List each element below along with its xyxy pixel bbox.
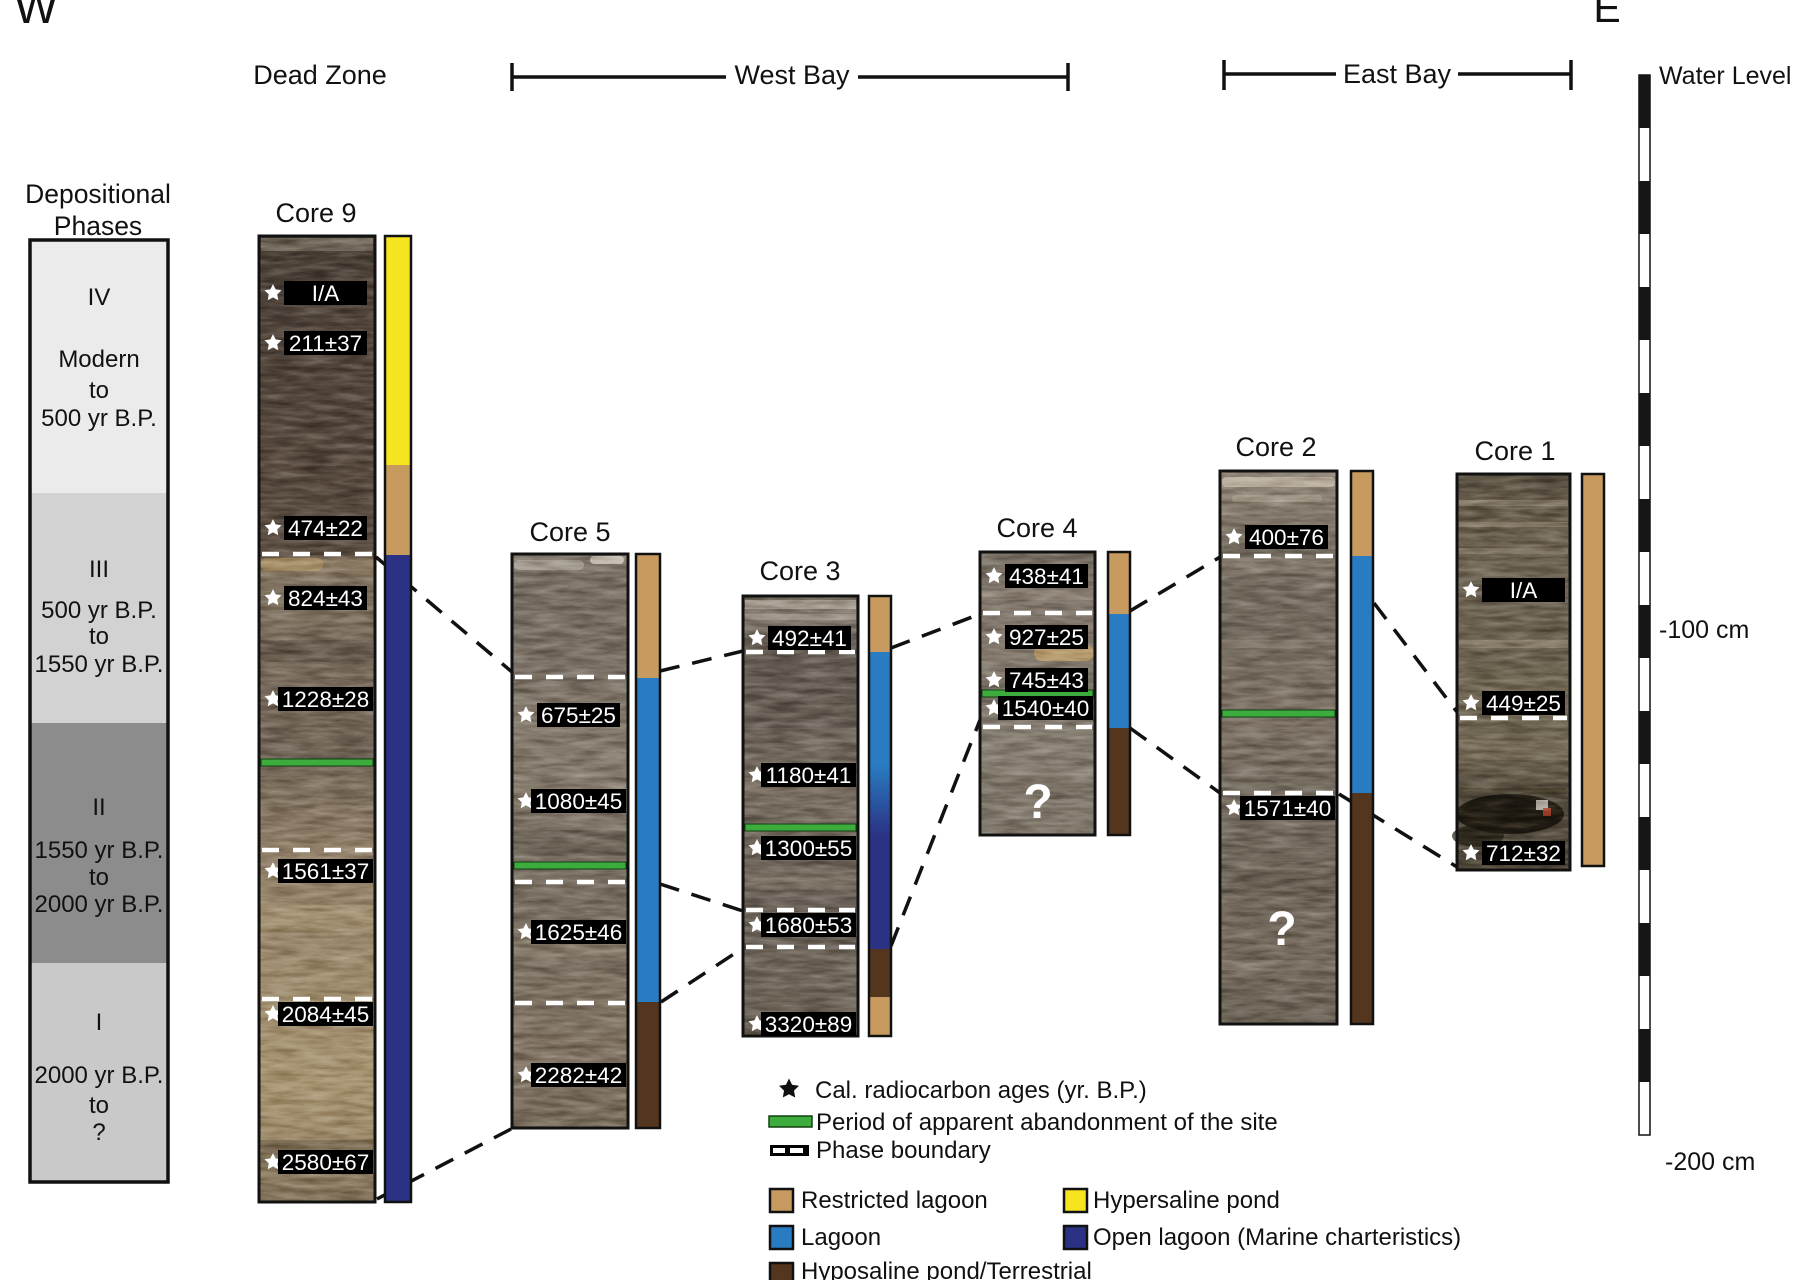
svg-text:Modern: Modern xyxy=(58,346,139,373)
svg-text:-100 cm: -100 cm xyxy=(1659,616,1749,644)
svg-text:Core 1: Core 1 xyxy=(1474,436,1555,466)
svg-text:745±43: 745±43 xyxy=(1009,668,1084,693)
svg-text:Core 9: Core 9 xyxy=(275,198,356,228)
svg-text:Lagoon: Lagoon xyxy=(801,1224,881,1251)
svg-text:492±41: 492±41 xyxy=(772,626,847,651)
svg-text:I/A: I/A xyxy=(1510,578,1538,603)
svg-text:?: ? xyxy=(92,1119,105,1146)
svg-text:E: E xyxy=(1593,0,1620,31)
svg-text:Hypersaline pond: Hypersaline pond xyxy=(1093,1187,1280,1214)
svg-text:1625±46: 1625±46 xyxy=(535,920,622,945)
svg-text:211±37: 211±37 xyxy=(289,331,362,356)
svg-text:Period of apparent abandonment: Period of apparent abandonment of the si… xyxy=(816,1109,1278,1136)
svg-text:1300±55: 1300±55 xyxy=(765,836,852,861)
svg-text:1180±41: 1180±41 xyxy=(766,763,852,788)
svg-text:2000 yr B.P.: 2000 yr B.P. xyxy=(35,1062,164,1089)
svg-text:Core 4: Core 4 xyxy=(996,513,1077,543)
svg-text:438±41: 438±41 xyxy=(1009,564,1084,589)
svg-text:W: W xyxy=(14,0,58,33)
svg-text:Water Level: Water Level xyxy=(1659,62,1791,90)
svg-text:1680±53: 1680±53 xyxy=(765,913,852,938)
svg-text:to: to xyxy=(89,623,109,650)
svg-text:Restricted lagoon: Restricted lagoon xyxy=(801,1187,988,1214)
svg-text:1571±40: 1571±40 xyxy=(1244,796,1331,821)
svg-text:Dead Zone: Dead Zone xyxy=(253,60,387,90)
svg-text:Hyposaline pond/Terrestrial: Hyposaline pond/Terrestrial xyxy=(801,1258,1092,1280)
svg-text:to: to xyxy=(89,864,109,891)
svg-text:1540±40: 1540±40 xyxy=(1002,696,1089,721)
svg-text:449±25: 449±25 xyxy=(1486,691,1561,716)
svg-text:Cal. radiocarbon ages (yr. B.P: Cal. radiocarbon ages (yr. B.P.) xyxy=(815,1077,1147,1104)
svg-text:?: ? xyxy=(1023,776,1052,829)
svg-text:2282±42: 2282±42 xyxy=(535,1063,622,1088)
svg-text:IV: IV xyxy=(88,284,111,311)
svg-text:2580±67: 2580±67 xyxy=(282,1150,369,1175)
svg-text:II: II xyxy=(92,794,105,821)
svg-text:1550 yr B.P.: 1550 yr B.P. xyxy=(35,651,164,678)
svg-text:East Bay: East Bay xyxy=(1343,59,1452,89)
svg-text:2084±45: 2084±45 xyxy=(282,1002,369,1027)
svg-text:500 yr B.P.: 500 yr B.P. xyxy=(41,597,157,624)
svg-text:to: to xyxy=(89,377,109,404)
svg-text:-200 cm: -200 cm xyxy=(1665,1148,1755,1176)
svg-text:712±32: 712±32 xyxy=(1486,841,1561,866)
svg-text:2000 yr B.P.: 2000 yr B.P. xyxy=(35,891,164,918)
svg-text:West Bay: West Bay xyxy=(734,60,850,90)
svg-text:3320±89: 3320±89 xyxy=(765,1012,852,1037)
svg-text:927±25: 927±25 xyxy=(1009,625,1084,650)
svg-text:Phase boundary: Phase boundary xyxy=(816,1137,991,1164)
svg-text:Core 2: Core 2 xyxy=(1235,432,1316,462)
svg-text:Phases: Phases xyxy=(54,211,142,241)
svg-text:474±22: 474±22 xyxy=(288,516,363,541)
svg-text:400±76: 400±76 xyxy=(1249,525,1324,550)
svg-text:Core 3: Core 3 xyxy=(759,556,840,586)
svg-text:to: to xyxy=(89,1092,109,1119)
svg-text:675±25: 675±25 xyxy=(541,703,616,728)
svg-text:Open lagoon (Marine charterist: Open lagoon (Marine charteristics) xyxy=(1093,1224,1461,1251)
svg-text:1228±28: 1228±28 xyxy=(282,687,369,712)
svg-text:Depositional: Depositional xyxy=(25,179,171,209)
svg-text:?: ? xyxy=(1267,903,1296,956)
svg-text:1550 yr B.P.: 1550 yr B.P. xyxy=(35,837,164,864)
svg-text:1080±45: 1080±45 xyxy=(535,789,622,814)
svg-text:824±43: 824±43 xyxy=(288,586,363,611)
svg-text:I/A: I/A xyxy=(312,281,340,306)
svg-text:Core 5: Core 5 xyxy=(529,517,610,547)
svg-text:III: III xyxy=(89,556,109,583)
svg-text:500 yr B.P.: 500 yr B.P. xyxy=(41,405,157,432)
svg-text:I: I xyxy=(96,1009,103,1036)
svg-text:1561±37: 1561±37 xyxy=(282,859,369,884)
